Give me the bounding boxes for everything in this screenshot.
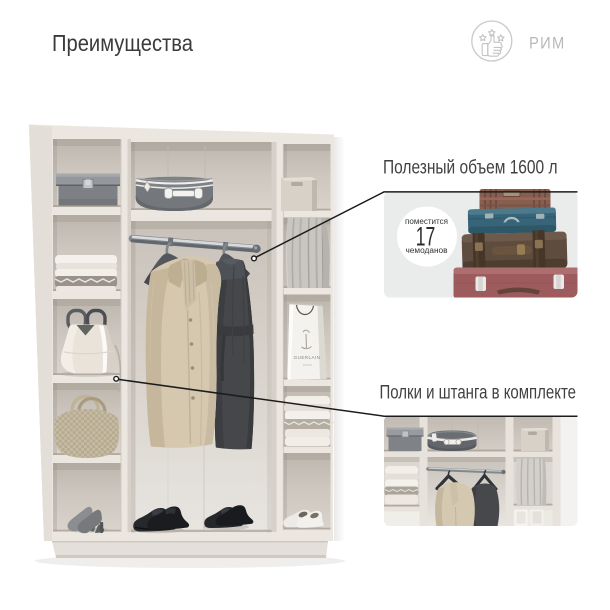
- svg-text:GUERLAIN: GUERLAIN: [294, 355, 321, 360]
- svg-text:чемоданов: чемоданов: [406, 246, 448, 255]
- svg-text:Полки и штанга в комплекте: Полки и штанга в комплекте: [380, 383, 577, 404]
- svg-text:Преимущества: Преимущества: [52, 30, 194, 56]
- svg-text:Полезный объем 1600 л: Полезный объем 1600 л: [383, 158, 558, 179]
- svg-text:РИМ: РИМ: [529, 34, 566, 53]
- svg-text:PARIS: PARIS: [303, 363, 312, 367]
